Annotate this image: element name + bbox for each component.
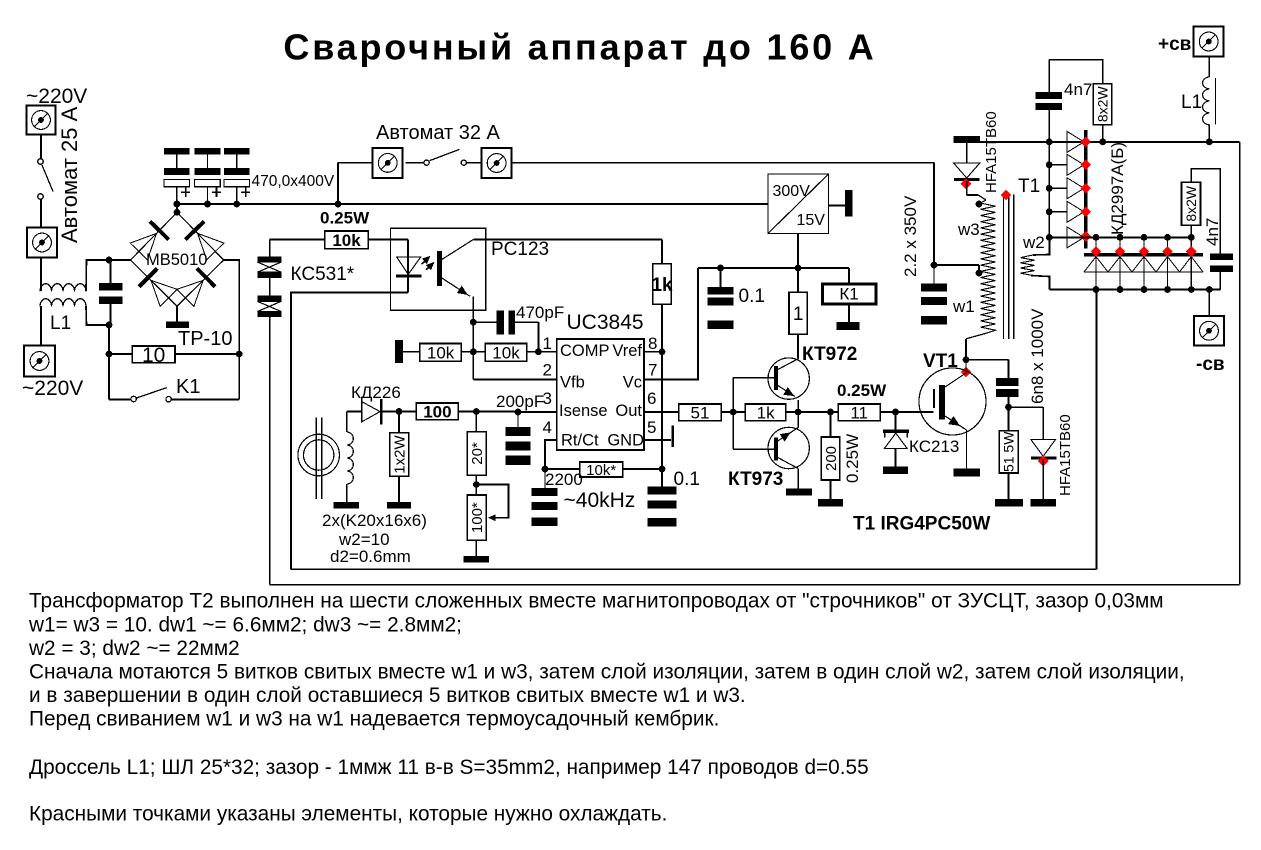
svg-text:1: 1 [543, 334, 552, 353]
svg-text:КС213: КС213 [909, 437, 959, 456]
svg-text:10k: 10k [427, 344, 455, 363]
svg-text:Автомат 32 А: Автомат 32 А [376, 122, 501, 144]
svg-text:Красными точками указаны элеме: Красными точками указаны элементы, котор… [29, 803, 667, 826]
svg-text:Out: Out [615, 402, 642, 420]
svg-text:T1 IRG4PC50W: T1 IRG4PC50W [853, 514, 990, 535]
svg-text:и в завершении в один слой ост: и в завершении в один слой оставшиеся 5 … [29, 684, 746, 707]
svg-text:UC3845: UC3845 [567, 311, 644, 334]
svg-text:VT1: VT1 [923, 351, 958, 372]
svg-text:0.25W: 0.25W [843, 434, 862, 483]
svg-text:w1: w1 [952, 297, 975, 316]
svg-text:11: 11 [850, 403, 868, 422]
svg-text:К1: К1 [839, 285, 858, 304]
svg-text:200: 200 [823, 446, 840, 471]
svg-text:КТ972: КТ972 [802, 344, 857, 365]
svg-text:0.25W: 0.25W [320, 209, 370, 228]
svg-text:Сначала мотаются 5 витков свит: Сначала мотаются 5 витков свитых вместе … [29, 661, 1185, 684]
svg-text:1x2W: 1x2W [392, 435, 409, 474]
svg-text:~40kHz: ~40kHz [564, 489, 636, 512]
svg-text:КТ973: КТ973 [728, 469, 783, 490]
svg-text:100*: 100* [469, 502, 486, 533]
svg-text:PC123: PC123 [491, 239, 549, 260]
svg-text:ТР-10: ТР-10 [178, 328, 232, 350]
svg-text:T1: T1 [1018, 176, 1040, 197]
svg-text:COMP: COMP [560, 342, 610, 360]
svg-text:L1: L1 [50, 313, 71, 334]
svg-text:8x2W: 8x2W [1095, 86, 1111, 123]
svg-text:8x2W: 8x2W [1183, 185, 1199, 222]
svg-text:10: 10 [142, 344, 165, 367]
svg-text:Rt/Ct: Rt/Ct [561, 432, 599, 450]
svg-text:20*: 20* [469, 442, 486, 465]
svg-text:Vfb: Vfb [560, 374, 585, 392]
svg-text:Vref: Vref [612, 342, 642, 360]
svg-text:1: 1 [793, 304, 804, 325]
svg-text:Сварочный аппарат до 160 А: Сварочный аппарат до 160 А [283, 27, 876, 68]
svg-text:w3: w3 [957, 220, 980, 239]
svg-text:1k: 1k [651, 275, 673, 296]
svg-text:КС531*: КС531* [291, 264, 355, 285]
svg-text:L1: L1 [1181, 92, 1202, 113]
svg-text:7: 7 [648, 361, 657, 380]
svg-text:HFA15TB60: HFA15TB60 [1057, 414, 1074, 496]
svg-text:КД2997А(Б): КД2997А(Б) [1108, 142, 1127, 235]
svg-text:Трансформатор Т2 выполнен на ш: Трансформатор Т2 выполнен на шести сложе… [29, 590, 1164, 613]
svg-text:d2=0.6mm: d2=0.6mm [330, 547, 411, 566]
svg-text:КД226: КД226 [351, 383, 401, 402]
svg-text:2.2 x 350V: 2.2 x 350V [901, 195, 920, 277]
svg-text:4n7: 4n7 [1203, 218, 1222, 246]
svg-text:K1: K1 [176, 376, 200, 398]
svg-text:~220V: ~220V [22, 377, 83, 400]
svg-text:0.1: 0.1 [674, 469, 700, 490]
svg-text:МВ5010: МВ5010 [146, 251, 207, 269]
svg-text:6: 6 [647, 389, 656, 408]
svg-text:8: 8 [648, 334, 657, 353]
svg-text:0.25W: 0.25W [837, 381, 887, 400]
svg-text:51: 51 [690, 403, 709, 422]
svg-text:470,0x400V: 470,0x400V [252, 173, 335, 190]
svg-text:300V: 300V [773, 183, 811, 200]
svg-text:470pF: 470pF [516, 303, 564, 322]
svg-text:10k*: 10k* [586, 462, 616, 479]
svg-text:51 5W: 51 5W [1001, 431, 1017, 472]
svg-text:2: 2 [543, 361, 552, 380]
svg-text:15V: 15V [797, 212, 826, 229]
svg-text:10k: 10k [492, 344, 520, 363]
svg-text:Перед свиванием w1 и w3 на w1: Перед свиванием w1 и w3 на w1 надевается… [29, 708, 719, 731]
svg-text:6n8 x 1000V: 6n8 x 1000V [1028, 308, 1047, 404]
svg-text:w2 = 3; dw2 ~= 22мм2: w2 = 3; dw2 ~= 22мм2 [28, 637, 240, 660]
svg-text:w1= w3 = 10. dw1 ~= 6.6мм2; dw: w1= w3 = 10. dw1 ~= 6.6мм2; dw3 ~= 2.8мм… [28, 614, 462, 637]
svg-text:HFA15TB60: HFA15TB60 [983, 111, 1000, 193]
svg-text:4n7: 4n7 [1064, 80, 1092, 99]
svg-text:1k: 1k [757, 403, 775, 422]
svg-text:GND: GND [607, 432, 644, 450]
svg-text:0.1: 0.1 [739, 286, 765, 307]
svg-text:Vc: Vc [623, 374, 642, 392]
svg-text:+св: +св [1158, 34, 1191, 55]
svg-text:Дроссель L1; ШЛ 25*32; зазор -: Дроссель L1; ШЛ 25*32; зазор - 1ммж 11 в… [29, 756, 869, 779]
svg-text:w2: w2 [1022, 233, 1045, 252]
svg-text:200pF: 200pF [496, 392, 544, 411]
svg-text:Автомат 25 А: Автомат 25 А [57, 106, 82, 243]
svg-text:4: 4 [543, 418, 552, 437]
svg-text:-св: -св [1196, 354, 1225, 375]
svg-text:2x(K20x16x6): 2x(K20x16x6) [322, 511, 427, 530]
svg-text:2200: 2200 [545, 470, 583, 489]
svg-text:100: 100 [423, 402, 451, 421]
svg-text:5: 5 [647, 418, 656, 437]
svg-text:Isense: Isense [559, 402, 608, 420]
svg-text:10k: 10k [332, 231, 361, 250]
